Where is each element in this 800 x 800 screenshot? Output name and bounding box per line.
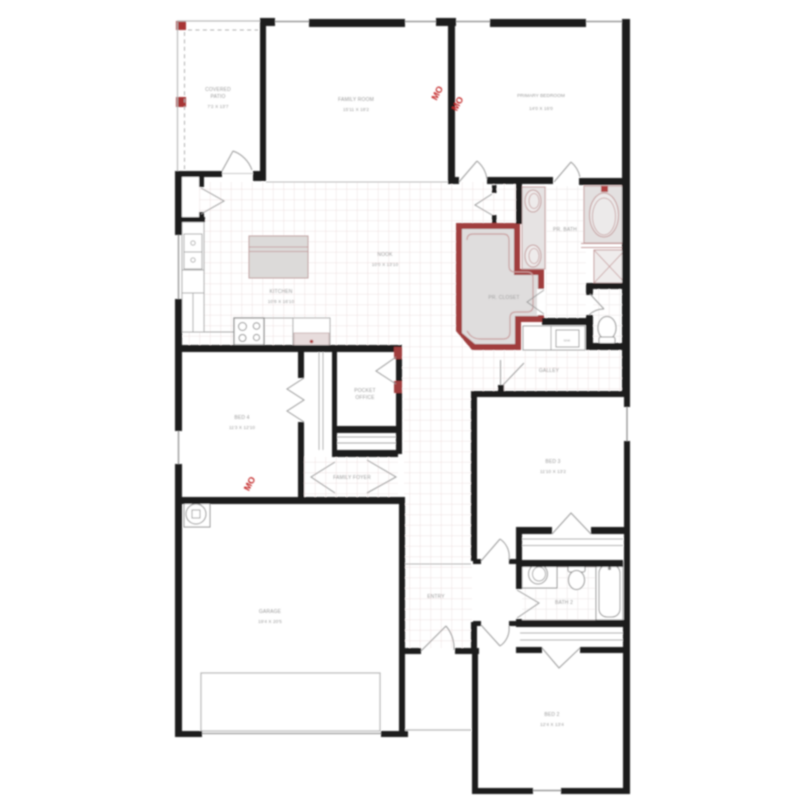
svg-text:PR. CLOSET: PR. CLOSET xyxy=(488,295,519,301)
svg-text:BATH 2: BATH 2 xyxy=(555,600,573,606)
svg-text:PR. BATH: PR. BATH xyxy=(553,227,577,233)
svg-text:NOOK: NOOK xyxy=(377,252,393,258)
svg-text:PATIO: PATIO xyxy=(210,94,225,100)
svg-text:POCKET: POCKET xyxy=(354,388,375,394)
svg-text:GARAGE: GARAGE xyxy=(259,609,282,615)
svg-text:19'4 X 20'5: 19'4 X 20'5 xyxy=(258,619,282,624)
svg-text:7'2 X 13'7: 7'2 X 13'7 xyxy=(207,104,228,109)
svg-text:FAMILY FOYER: FAMILY FOYER xyxy=(333,475,371,481)
svg-text:12'4 X 13'4: 12'4 X 13'4 xyxy=(540,722,564,727)
svg-text:15'11 X 18'2: 15'11 X 18'2 xyxy=(343,107,369,112)
svg-text:GALLEY: GALLEY xyxy=(539,368,560,374)
svg-text:10'8 X 16'10: 10'8 X 16'10 xyxy=(268,299,295,304)
svg-text:BED 2: BED 2 xyxy=(544,712,559,718)
svg-text:ENTRY: ENTRY xyxy=(427,594,445,600)
svg-text:FAMILY ROOM: FAMILY ROOM xyxy=(338,97,374,103)
svg-text:BED 4: BED 4 xyxy=(234,415,249,421)
svg-text:PRIMARY BEDROOM: PRIMARY BEDROOM xyxy=(517,93,565,99)
svg-text:KITCHEN: KITCHEN xyxy=(270,289,293,295)
svg-text:COVERED: COVERED xyxy=(205,87,231,93)
svg-text:OFFICE: OFFICE xyxy=(355,395,375,401)
svg-text:10'0 X 13'10: 10'0 X 13'10 xyxy=(372,262,399,267)
svg-text:11'3 X 12'10: 11'3 X 12'10 xyxy=(229,425,255,430)
svg-text:BED 3: BED 3 xyxy=(545,459,560,465)
svg-text:14'0 X 16'0: 14'0 X 16'0 xyxy=(529,106,553,111)
svg-text:SINK: SINK xyxy=(563,339,570,343)
svg-text:11'10 X 13'2: 11'10 X 13'2 xyxy=(540,469,566,474)
